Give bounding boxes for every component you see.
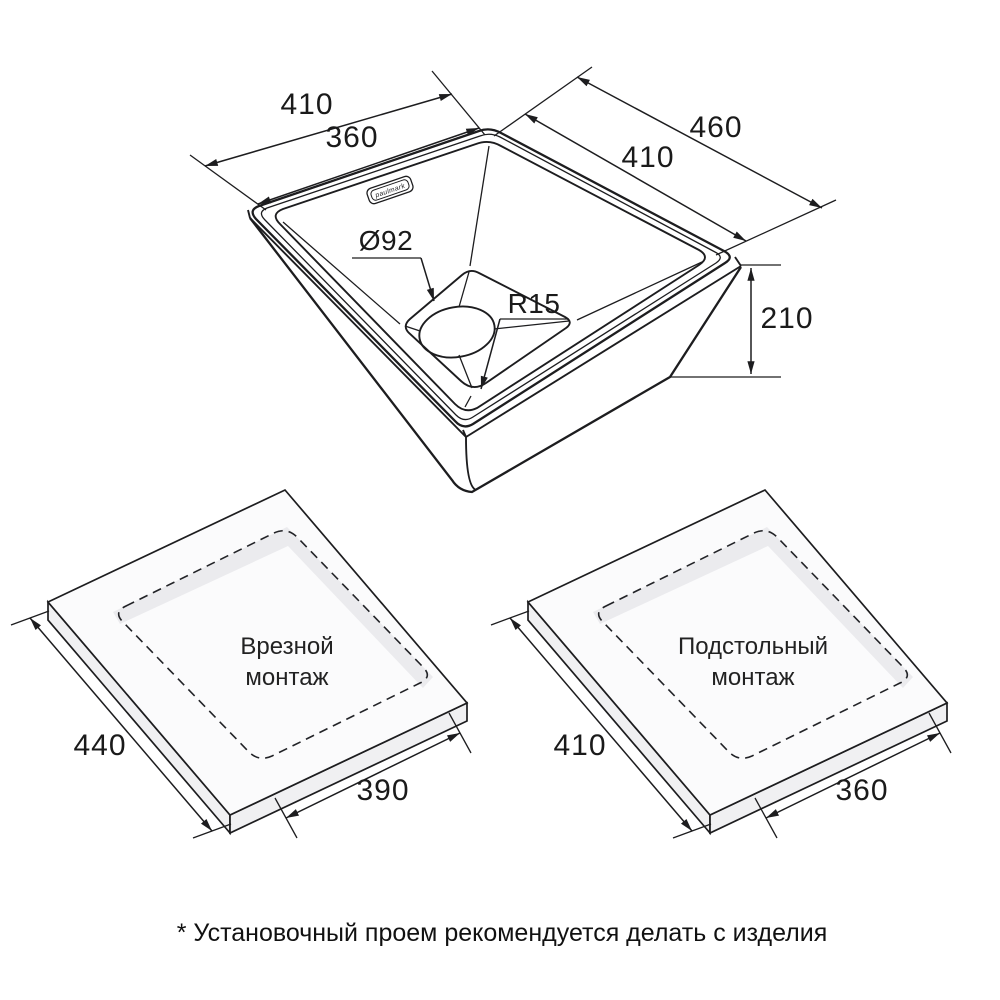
dim-label-right-inner: 410 — [621, 141, 674, 174]
mount-diagram-under: Подстольный монтаж 410 360 — [491, 490, 951, 838]
diagram-svg: paulmark 410 360 460 410 210 — [0, 0, 1000, 1000]
dim-label-top-inner: 360 — [325, 121, 378, 154]
sink-body-near-corner-edge — [466, 437, 476, 490]
ext-line-far — [432, 71, 485, 135]
ext-line-right — [716, 200, 836, 255]
under-dim-outer-label: 410 — [553, 729, 606, 762]
inset-title-line1: Врезной — [240, 633, 333, 660]
bowl-opening-edge — [276, 142, 705, 410]
under-title-line2: монтаж — [711, 664, 794, 691]
callout-corner-radius: R15 — [481, 288, 569, 389]
inset-title-line2: монтаж — [245, 664, 328, 691]
corner-radius-leader — [481, 319, 500, 389]
sink-isometric-drawing: paulmark 410 360 460 410 210 — [190, 67, 836, 492]
drain-hole — [415, 301, 499, 363]
inset-dim-cutout-label: 390 — [356, 774, 409, 807]
sink-installation-diagram: paulmark 410 360 460 410 210 — [0, 0, 1000, 1000]
dim-label-top-outer: 410 — [280, 88, 333, 121]
callout-drain-diameter: Ø92 — [352, 225, 434, 301]
footnote: * Установочный проем рекомендуется делат… — [177, 919, 828, 947]
dimension-height: 210 — [670, 265, 814, 377]
dim-label-height: 210 — [760, 302, 813, 335]
drain-callout-leader — [421, 258, 434, 301]
corner-radius-label: R15 — [508, 288, 561, 319]
inset-dim-outer-label: 440 — [73, 729, 126, 762]
under-title-line1: Подстольный — [678, 633, 828, 660]
dim-label-right-outer: 460 — [689, 111, 742, 144]
under-dim-cutout-label: 360 — [835, 774, 888, 807]
bowl-wall-creases — [283, 146, 702, 407]
dimension-top-left: 410 360 — [190, 71, 485, 210]
ext-line-left — [190, 155, 266, 210]
sink-body-silhouette — [250, 218, 741, 492]
mount-diagram-inset: Врезной монтаж 440 390 — [11, 490, 471, 838]
drain-diameter-label: Ø92 — [359, 225, 413, 256]
